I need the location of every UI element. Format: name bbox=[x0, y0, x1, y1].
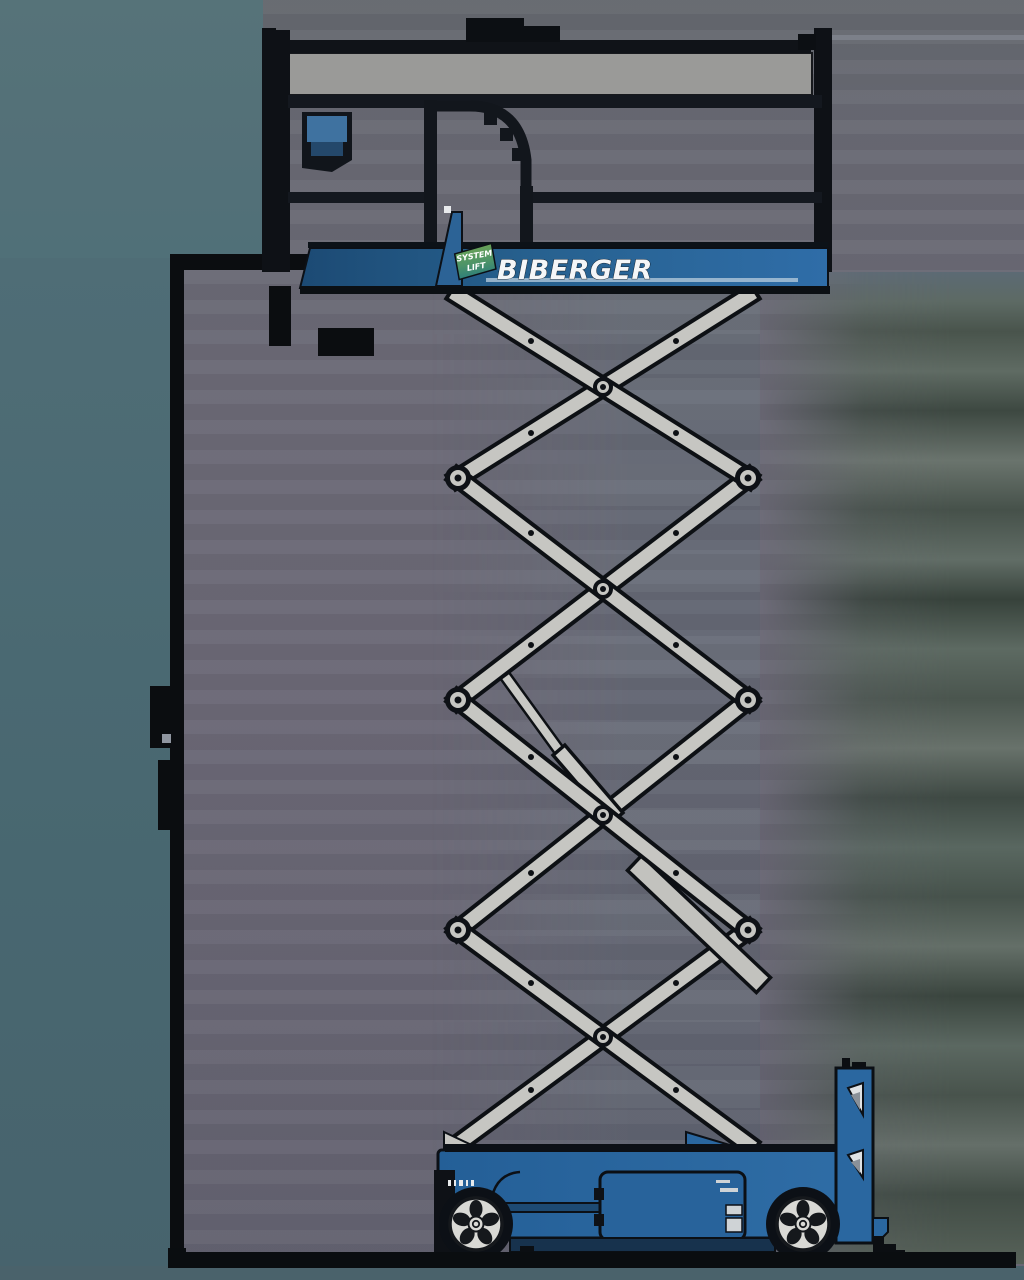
access-door bbox=[594, 1172, 745, 1240]
scissor-lift-drawing: SYSTEM LIFT BIBERGER bbox=[0, 0, 1024, 1280]
control-box bbox=[302, 112, 352, 172]
folded-rail-panel bbox=[288, 53, 812, 95]
entry-gate bbox=[424, 100, 533, 250]
scissor-front-arms bbox=[458, 296, 748, 1144]
pothole-skirt bbox=[510, 1238, 775, 1252]
left-wheel bbox=[439, 1187, 513, 1261]
platform-deck: SYSTEM LIFT BIBERGER bbox=[300, 206, 830, 294]
platform-assembly: SYSTEM LIFT BIBERGER bbox=[262, 18, 832, 294]
guardrail-mid-rail-right bbox=[532, 192, 822, 203]
scissor-lift-illustration: { "machine": { "brand_label": "BIBERGER"… bbox=[0, 0, 1024, 1280]
guardrail-mid-rail-left bbox=[288, 192, 426, 203]
guardrail-top-rail bbox=[288, 95, 822, 108]
arm-rivets bbox=[528, 338, 679, 1093]
right-wheel bbox=[766, 1187, 840, 1261]
scissor-rear-arms bbox=[458, 296, 748, 1144]
top-notch bbox=[466, 18, 524, 42]
guardrail-right-post bbox=[814, 28, 832, 272]
brand-text: BIBERGER bbox=[497, 255, 653, 286]
guardrail-left-post bbox=[262, 30, 290, 272]
line-block-lower bbox=[158, 760, 184, 830]
entry-tower bbox=[836, 1058, 905, 1254]
scissor-mechanism bbox=[448, 296, 759, 1144]
reference-lines bbox=[150, 254, 374, 1262]
